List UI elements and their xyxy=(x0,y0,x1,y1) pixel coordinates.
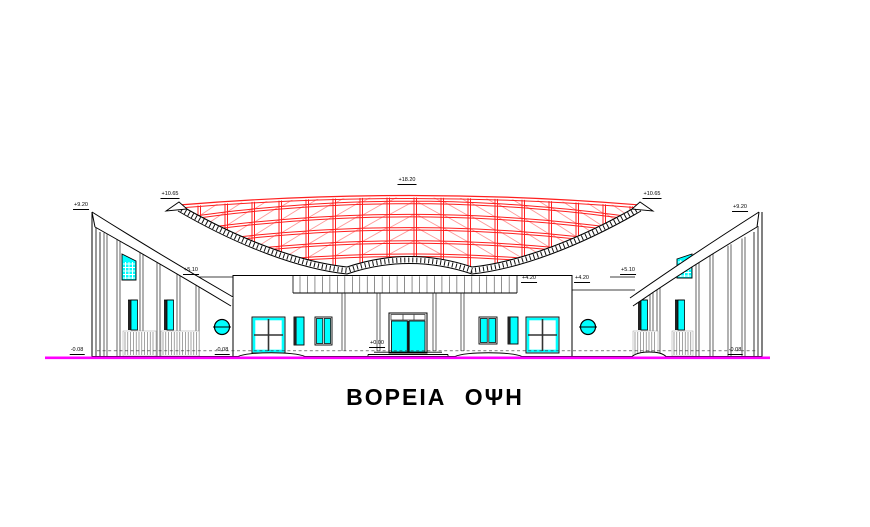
elevation-marker: +0.00 xyxy=(369,341,385,348)
right-wing xyxy=(579,212,762,357)
elevation-marker: +5.10 xyxy=(183,268,199,275)
elevation-marker: +10.65 xyxy=(161,192,180,199)
elevation-marker: -0.08 xyxy=(728,348,743,355)
elevation-marker: +9.20 xyxy=(73,203,89,210)
entrance-door xyxy=(389,313,427,353)
elevation-marker: +4.20 xyxy=(574,276,590,283)
elevation-marker: +5.10 xyxy=(620,268,636,275)
elevation-drawing xyxy=(0,0,870,527)
central-block xyxy=(195,276,635,358)
elevation-marker: +18.20 xyxy=(398,178,417,185)
left-wing xyxy=(92,212,233,357)
elevation-marker: +4.20 xyxy=(521,276,537,283)
elevation-marker: -0.08 xyxy=(70,348,85,355)
elevation-sheet: +9.20+10.65+18.20+10.65+9.20+5.10+5.10+4… xyxy=(0,0,870,527)
elevation-marker: -0.08 xyxy=(215,348,230,355)
elevation-marker: +9.20 xyxy=(732,205,748,212)
elevation-marker: +10.65 xyxy=(643,192,662,199)
drawing-title: ΒΟΡΕΙΑ ΟΨΗ xyxy=(0,384,870,411)
